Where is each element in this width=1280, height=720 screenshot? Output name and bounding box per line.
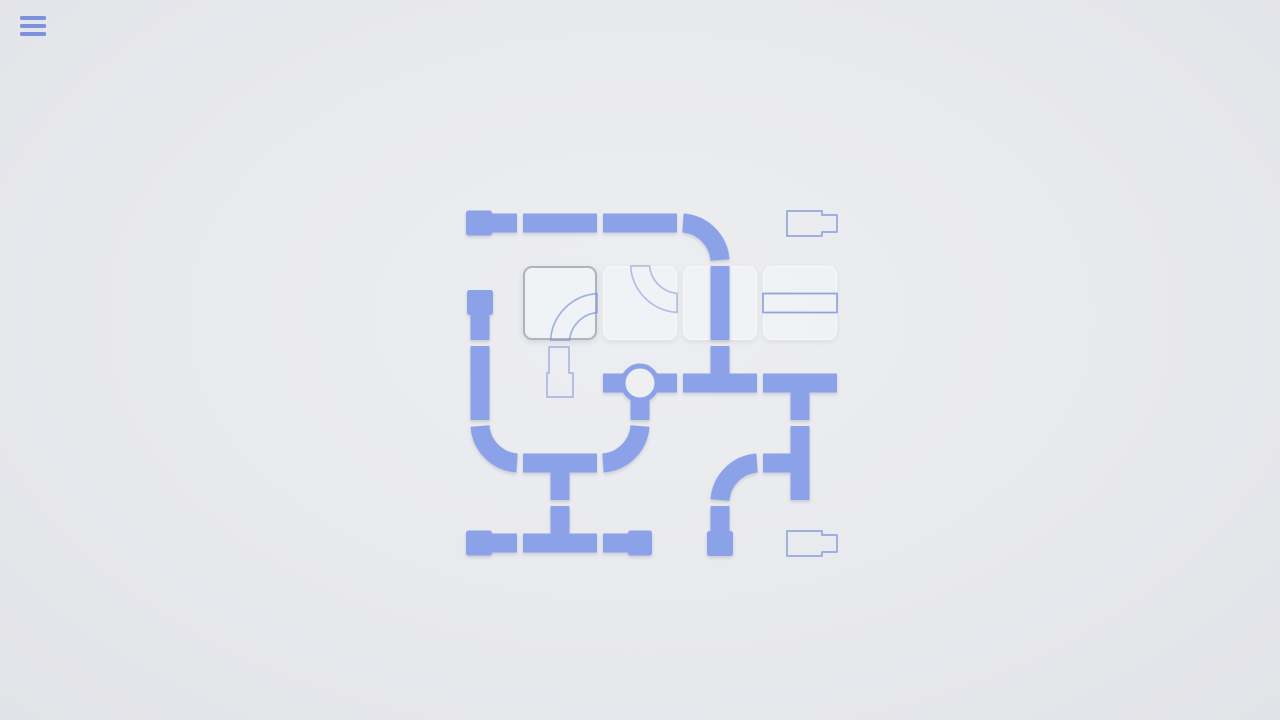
pipe-valve-lrd[interactable]: [600, 343, 680, 423]
pipe-straight-ud[interactable]: [680, 263, 760, 343]
ghost-pipe-end-u[interactable]: [520, 343, 600, 423]
pipe-tee-udl[interactable]: [760, 423, 840, 503]
ghost-pipe-end-r[interactable]: [760, 183, 840, 263]
ghost-pipe-end-r[interactable]: [760, 503, 840, 583]
pipe-elbow-rd[interactable]: [680, 423, 760, 503]
pipe-end-l[interactable]: [600, 503, 680, 583]
pipe-end-d[interactable]: [440, 263, 520, 343]
pipe-elbow-ur[interactable]: [440, 423, 520, 503]
ghost-pipe-elbow-ur[interactable]: [600, 263, 680, 343]
hamburger-menu-icon[interactable]: [20, 16, 46, 36]
ghost-pipe-elbow-rd[interactable]: [520, 263, 600, 343]
pipe-straight-lr[interactable]: [600, 183, 680, 263]
pipe-tee-lrd[interactable]: [760, 343, 840, 423]
pipe-tee-lrd[interactable]: [520, 423, 600, 503]
ghost-pipe-straight-lr[interactable]: [760, 263, 840, 343]
pipe-straight-lr[interactable]: [520, 183, 600, 263]
pipe-end-r[interactable]: [440, 503, 520, 583]
pipe-elbow-ld[interactable]: [680, 183, 760, 263]
pipe-tee-ulr[interactable]: [680, 343, 760, 423]
pipe-puzzle-board: [440, 183, 840, 583]
menu-bar: [20, 16, 46, 20]
pipe-straight-ud[interactable]: [440, 343, 520, 423]
pipe-elbow-ul[interactable]: [600, 423, 680, 503]
pipe-tee-ulr[interactable]: [520, 503, 600, 583]
pipe-end-r[interactable]: [440, 183, 520, 263]
pipe-end-u[interactable]: [680, 503, 760, 583]
menu-bar: [20, 24, 46, 28]
menu-bar: [20, 32, 46, 36]
